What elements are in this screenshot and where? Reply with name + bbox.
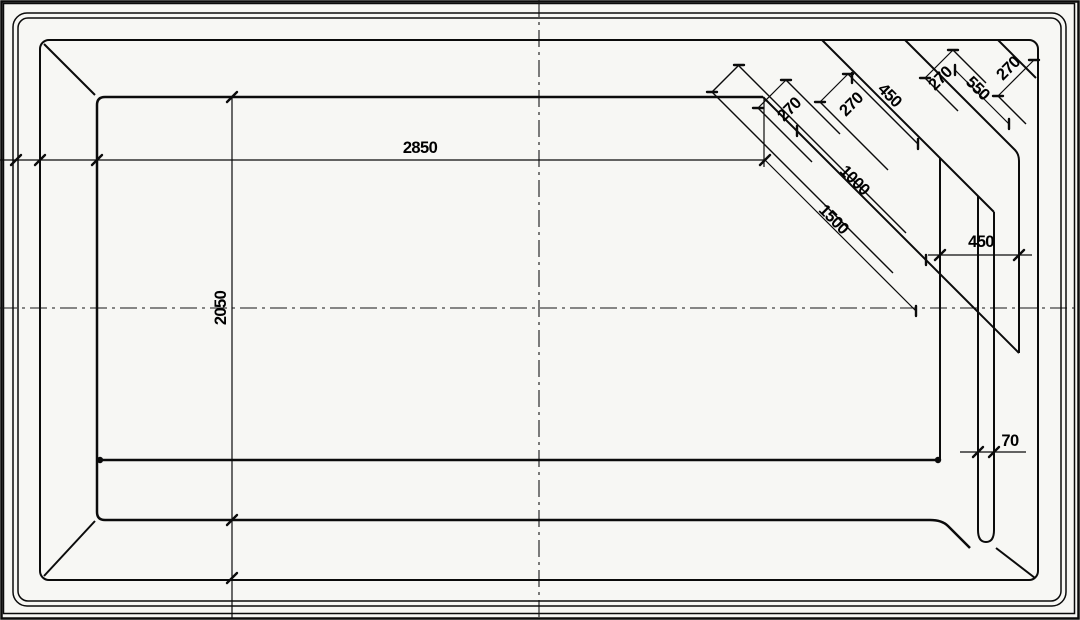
- corner-chamfer-bottom-left: [44, 521, 95, 576]
- band-270-4-side-a: [998, 96, 1026, 124]
- dim-channel-width-label: 70: [1001, 432, 1019, 450]
- dim-step-edge-top-label: 450: [874, 80, 905, 111]
- dim-tread-width-3-label: 270: [925, 63, 956, 94]
- dim-inner-length-label: 2850: [403, 139, 438, 157]
- band-cap-start: [712, 65, 739, 92]
- pool-plan-drawing: 2850 2050 1500 1000 270 2: [0, 0, 1080, 620]
- dim-tread-width-1-label: 270: [774, 94, 805, 125]
- dim-tread-width-2-label: 270: [836, 89, 867, 120]
- centerlines: [0, 0, 1080, 620]
- corner-chamfer-bottom-right: [996, 548, 1035, 578]
- bench-line-left-dot: [97, 457, 103, 463]
- dimensions: 2850 2050 1500 1000 270 2: [0, 50, 1039, 618]
- dim-tread-width-4-label: 270: [993, 53, 1024, 84]
- dim-line-270-2: [820, 74, 848, 102]
- corner-chamfer-top-left: [44, 44, 95, 95]
- corner-steps: [763, 40, 1036, 542]
- dim-step-edge-long-label: 1500: [815, 201, 852, 238]
- dim-step-edge-mid-label: 1000: [836, 162, 873, 199]
- dim-step-edge-upper-label: 550: [962, 73, 993, 104]
- dim-inner-width-label: 2050: [212, 290, 230, 325]
- pool-plan-sheet: 2850 2050 1500 1000 270 2: [0, 0, 1080, 620]
- dim-bench-depth-label: 450: [968, 233, 994, 251]
- step-edge-3: [905, 40, 1019, 353]
- step-edge-1: [763, 97, 1019, 353]
